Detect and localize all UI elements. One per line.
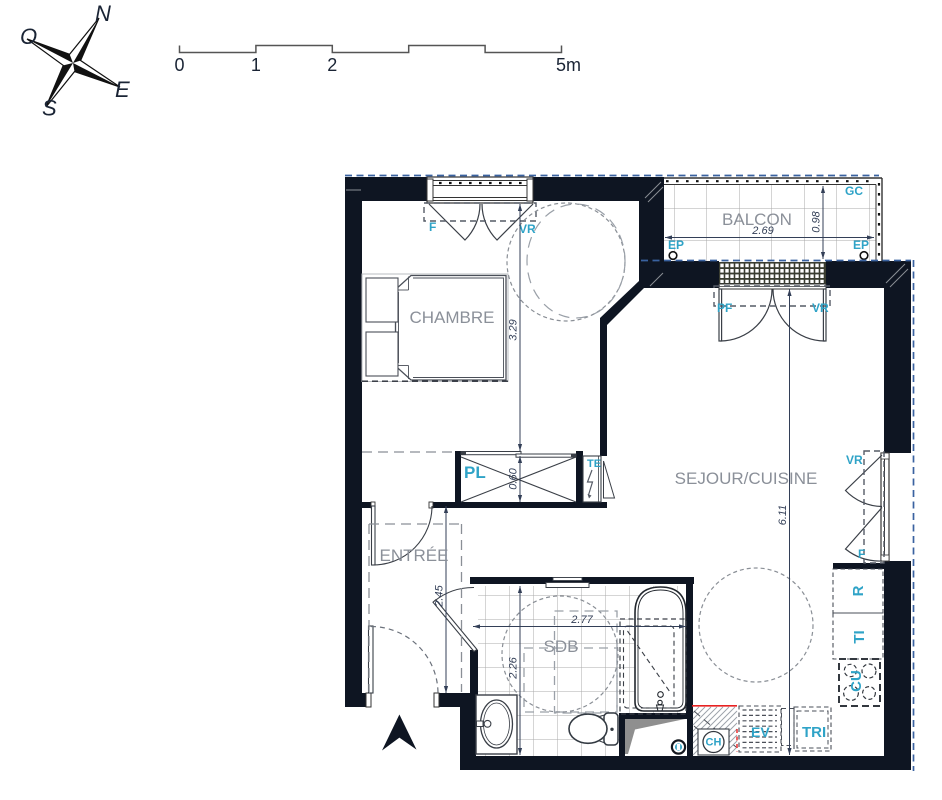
svg-text:0: 0 — [174, 55, 184, 75]
svg-text:F: F — [858, 547, 865, 561]
svg-text:0.60: 0.60 — [508, 467, 520, 489]
svg-text:TI: TI — [851, 630, 868, 643]
svg-text:EV: EV — [751, 724, 770, 740]
svg-text:F: F — [429, 220, 436, 234]
svg-text:EP: EP — [668, 238, 684, 252]
svg-text:2.77: 2.77 — [570, 614, 593, 626]
svg-text:SEJOUR/CUISINE: SEJOUR/CUISINE — [675, 469, 818, 488]
svg-text:O: O — [20, 24, 37, 49]
svg-text:R: R — [850, 585, 867, 596]
svg-text:PF: PF — [717, 301, 732, 315]
svg-text:GC: GC — [845, 184, 863, 198]
svg-text:5m: 5m — [556, 55, 581, 75]
svg-text:TRI: TRI — [802, 724, 826, 741]
svg-text:1: 1 — [251, 55, 261, 75]
svg-text:CU: CU — [848, 670, 865, 692]
svg-text:2.26: 2.26 — [508, 656, 520, 679]
svg-text:N: N — [95, 1, 111, 26]
svg-text:E: E — [115, 77, 130, 102]
svg-text:6.11: 6.11 — [777, 505, 789, 526]
svg-text:3.29: 3.29 — [508, 319, 520, 340]
svg-text:2: 2 — [327, 55, 337, 75]
svg-text:VR: VR — [846, 453, 863, 467]
svg-text:SDB: SDB — [544, 637, 579, 656]
svg-text:BALCON: BALCON — [722, 210, 792, 229]
svg-text:CHAMBRE: CHAMBRE — [409, 308, 494, 327]
svg-text:VR: VR — [812, 301, 829, 315]
svg-text:2.45: 2.45 — [434, 584, 446, 607]
svg-text:0.98: 0.98 — [811, 210, 823, 232]
svg-text:S: S — [42, 96, 57, 121]
svg-text:ENTRÉE: ENTRÉE — [380, 546, 449, 565]
svg-text:TE: TE — [587, 458, 601, 470]
svg-text:EP: EP — [853, 238, 869, 252]
svg-text:CH: CH — [706, 737, 722, 749]
svg-text:PL: PL — [464, 463, 486, 482]
